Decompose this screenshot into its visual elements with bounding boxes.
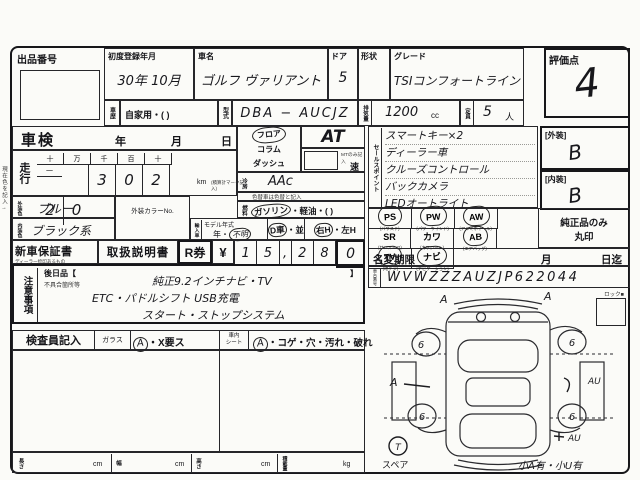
shift-cell: フロア コラム ダッシュ (237, 126, 301, 172)
history-value: 自家用・( ) (120, 100, 218, 126)
mileage-unit: km (197, 179, 206, 186)
genuine-note-cell: 純正品のみ 丸印 (538, 208, 630, 248)
height-label: 高さ (191, 454, 204, 472)
genuine-note-2: 丸印 (539, 229, 629, 243)
seat-rest: ・コゲ・穴・汚れ・破れ (268, 338, 373, 349)
first-reg-value: 30年 10月 (105, 70, 193, 89)
length-label: 長さ (14, 454, 27, 472)
mileage-d3: 2 (143, 165, 170, 195)
grade-label: グレード (394, 51, 523, 62)
car-name-cell: 車名 ゴルフ ヴァリアント (194, 48, 328, 100)
mileage-d2: 0 (116, 165, 143, 195)
width-label: 幅 (111, 454, 124, 472)
displacement-cell: 排気量 1200 cc (358, 100, 460, 126)
windshield (458, 340, 538, 372)
mark-right-2: AU (567, 434, 581, 444)
sales-line-3: クルーズコントロール (385, 162, 535, 179)
import-row: 輸入車 モデル年式 年・不明 D車・並 右H・左H (190, 218, 365, 240)
auction-sheet-scan: 現在色を記入→ 出品番号 初度登録年月 30年 10月 車名 ゴルフ ヴァリアン… (0, 0, 640, 480)
color-change-note: 色替車は色替と記入 (237, 192, 365, 201)
right-handle: 右H (314, 222, 334, 238)
model-year-pre: 年・ (213, 230, 229, 239)
car-name-value: ゴルフ ヴァリアント (195, 70, 327, 89)
door-value: 5 (329, 70, 357, 86)
door-cell: ドア 5 (328, 48, 358, 100)
history-label: 車歴 (104, 100, 120, 126)
int-color-row: 内装色 ブラック系 (12, 218, 115, 240)
notes-line-3: スタート・ストップシステム (142, 307, 285, 323)
spare-label: スペア (382, 461, 408, 471)
ext-grade-box: [外装] B (540, 126, 630, 170)
equipment-grid: PS (パワステ) PW (パワーウインド) AW (アルミホイール) SR (… (368, 208, 538, 248)
warranty-label: 新車保証書 (15, 243, 97, 259)
grade-cell: グレード TSIコンフォートライン (390, 48, 524, 100)
door-label: ドア (331, 51, 357, 62)
spare-mark: T (395, 443, 402, 453)
chassis-row: 車台番号 WVWZZZAUZJP622044 (368, 266, 630, 288)
transmission-value: AT (301, 126, 365, 148)
int-color-label: 内装色 (14, 220, 26, 240)
length-unit: cm (93, 461, 102, 468)
mileage-d1: 3 (89, 165, 116, 195)
mileage-h2: 千 (91, 153, 118, 165)
right-lower-tick (554, 432, 564, 441)
wheel-mark-fl: 6 (418, 340, 424, 351)
equip-pw: PW (パワーウインド) (412, 209, 455, 229)
equip-ps: PS (パワステ) (369, 209, 412, 229)
cabin-area (466, 378, 530, 406)
d-car-rest: ・並 (287, 224, 304, 236)
glass-label: ガラス (95, 331, 131, 349)
auction-no-label: 出品番号 (17, 51, 57, 66)
sales-line-4: バックカメラ (385, 179, 535, 196)
shaken-label: 車検 (21, 129, 55, 150)
shift-floor: フロア (251, 126, 286, 145)
mileage-row: 走行 十 万 千 百 十 一 3 0 2 2 0 km (積算計マーク記入) (12, 150, 237, 196)
damage-diagram-box: ロック■ (368, 288, 630, 473)
rticket-d3: 2 (292, 240, 314, 266)
color-no-label: 外装カラーNo. (116, 205, 189, 215)
fuel-row: 燃料 ガソリン・軽油・( ) (237, 201, 365, 218)
left-mark-line (404, 384, 430, 387)
mileage-h4: 十 (145, 153, 172, 165)
hood-sensor-right (511, 313, 520, 322)
front-bumper-line2 (458, 305, 538, 310)
capacity-value: 5 (483, 104, 492, 120)
mileage-grid: 十 万 千 百 十 一 3 0 2 2 0 (37, 153, 193, 195)
rticket-label: R券 (178, 240, 212, 264)
displacement-unit: cc (431, 111, 439, 120)
mileage-h1: 万 (64, 153, 91, 165)
ext-color-value: ブルー (37, 200, 73, 217)
diagram-note: 小A有・小U有 (518, 460, 584, 472)
mt-entry-box (304, 151, 338, 170)
notes-line-2: ETC・パドルシフト USB充電 (92, 290, 239, 306)
rticket-d0: 1 (234, 240, 257, 266)
capacity-cell: 定員 5 人 (460, 100, 524, 126)
warranty-cell: 新車保証書 ディーラー捺印あるもの (12, 240, 98, 264)
ac-row: 冷房 AAc (237, 172, 365, 192)
glass-rest: ・X要ス (148, 338, 185, 349)
mark-right-1: AU (587, 377, 601, 387)
shape-label: 形状 (361, 51, 389, 62)
sales-points-label: セールスポイント (370, 128, 382, 207)
score-value: 4 (544, 57, 630, 111)
shift-column: コラム (257, 145, 281, 154)
width-unit: cm (175, 461, 184, 468)
fuel-rest: ・軽油・( ) (291, 206, 333, 216)
right-side-panel (580, 362, 604, 420)
ext-color-row: 外装色 ブルー (12, 196, 115, 218)
sales-line-1: スマートキー×2 (385, 128, 535, 145)
chassis-label: 車台番号 (370, 268, 381, 287)
int-color-value: ブラック系 (31, 222, 91, 239)
name-change-month: 月 (541, 252, 552, 267)
equip-ab: AB (エアバッグ) (454, 229, 497, 249)
notes-later-close: 】 (350, 268, 358, 279)
notes-defect-label: 不具合箇所等 (44, 280, 80, 289)
mileage-d0 (62, 165, 89, 195)
rear-window (460, 414, 536, 448)
d-car: D車 (268, 222, 288, 238)
diagram-side-box (596, 298, 626, 326)
grade-value: TSIコンフォートライン (391, 72, 523, 89)
wheel-mark-rl: 6 (419, 412, 425, 423)
shaken-day: 日 (221, 133, 232, 149)
inspector-row: 検査員記入 ガラス A・X要ス 車内 シート A・コゲ・穴・汚れ・破れ (12, 330, 365, 350)
car-name-label: 車名 (198, 51, 327, 62)
sales-line-2: ディーラー車 (385, 145, 535, 162)
shaken-row: 車検 年 月 日 (12, 126, 237, 150)
int-grade-box: [内装] B (540, 170, 630, 210)
ac-label: 冷房 (239, 174, 249, 192)
seat-label-2: シート (220, 340, 248, 347)
rticket-comma: , (280, 240, 292, 266)
name-change-row: 名変期限 月 日迄 (368, 248, 630, 266)
displacement-value: 1200 (385, 105, 418, 120)
left-side-panel (392, 362, 416, 420)
chassis-value: WVWZZZAUZJP622044 (387, 270, 579, 285)
displacement-label: 排気量 (359, 101, 372, 125)
margin-note: 現在色を記入→ (0, 166, 8, 212)
mt-box: MTのみ記入 速 (301, 148, 365, 172)
model-code-label: 型式 (218, 100, 232, 126)
shift-dash: ダッシュ (253, 159, 285, 168)
fuel-label: 燃料 (239, 202, 249, 218)
mileage-h0: 十 (37, 153, 64, 165)
capacity-label: 定員 (461, 101, 474, 125)
manual-label: 取扱説明書 (98, 240, 178, 264)
mark-front-right: A (543, 290, 552, 303)
first-reg-label: 初度登録年月 (108, 51, 193, 62)
genuine-note-1: 純正品のみ (539, 215, 629, 229)
mark-left: A (389, 376, 398, 389)
inspector-label: 検査員記入 (13, 331, 95, 349)
shaken-year: 年 (115, 133, 126, 149)
inspector-notes-area (12, 350, 365, 452)
right-squiggle-mark (564, 378, 569, 392)
car-top-view-diagram: A A A AU AU 6 6 6 6 T 小A有・小U有 スペア (368, 288, 630, 473)
notes-later-label: 後日品【 (44, 268, 76, 279)
rticket-digits: 1 5 , 2 8 0 (234, 240, 365, 264)
hood-sensor-left (477, 313, 486, 322)
color-no-box: 外装カラーNo. (115, 196, 190, 240)
mileage-h5: 一 (37, 165, 62, 177)
fender-rl (418, 428, 446, 433)
lock-label: ロック■ (604, 290, 624, 298)
rticket-d1: 5 (257, 240, 279, 266)
car-body (446, 312, 550, 456)
wheel-mark-rr: 6 (569, 412, 575, 423)
sales-points-box: セールスポイント スマートキー×2 ディーラー車 クルーズコントロール バックカ… (368, 126, 538, 208)
shaken-month: 月 (171, 133, 182, 149)
fender-rr (550, 428, 580, 433)
ac-value: AAc (268, 174, 293, 189)
height-unit: cm (261, 461, 270, 468)
import-label: 輸入車 (191, 220, 202, 240)
dimensions-row: 長さ cm 幅 cm 高さ cm 積載量 kg (12, 452, 365, 473)
notes-line-1: 純正9.2インチナビ・TV (152, 273, 272, 289)
inspector-area-divider (219, 351, 220, 451)
ext-color-label: 外装色 (14, 198, 26, 218)
yen-sign: ¥ (212, 240, 234, 264)
left-handle: ・左H (333, 224, 356, 236)
shape-cell: 形状 (358, 48, 390, 100)
name-change-until: 日迄 (601, 252, 622, 267)
score-box: 評価点 4 (544, 48, 630, 118)
model-code-value: DBA − AUCJZ (232, 100, 358, 126)
first-reg-cell: 初度登録年月 30年 10月 (104, 48, 194, 100)
mark-front-left: A (439, 293, 448, 306)
front-bumper-line (454, 299, 542, 304)
seat-label-1: 車内 (220, 332, 248, 340)
auction-no-box (20, 70, 100, 120)
notes-box: 注意事項 後日品【 】 不具合箇所等 純正9.2インチナビ・TV ETC・パドル… (12, 264, 365, 324)
load-unit: kg (343, 461, 350, 468)
wheel-mark-fr: 6 (569, 338, 575, 349)
wheel-front-left (412, 332, 440, 356)
capacity-unit: 人 (505, 110, 514, 123)
notes-label: 注意事項 (16, 268, 38, 322)
rticket-d4: 8 (314, 240, 336, 266)
name-change-label: 名変期限 (373, 252, 415, 267)
mileage-label: 走行 (15, 153, 33, 193)
mileage-h3: 百 (118, 153, 145, 165)
load-label: 積載量 (277, 454, 292, 472)
